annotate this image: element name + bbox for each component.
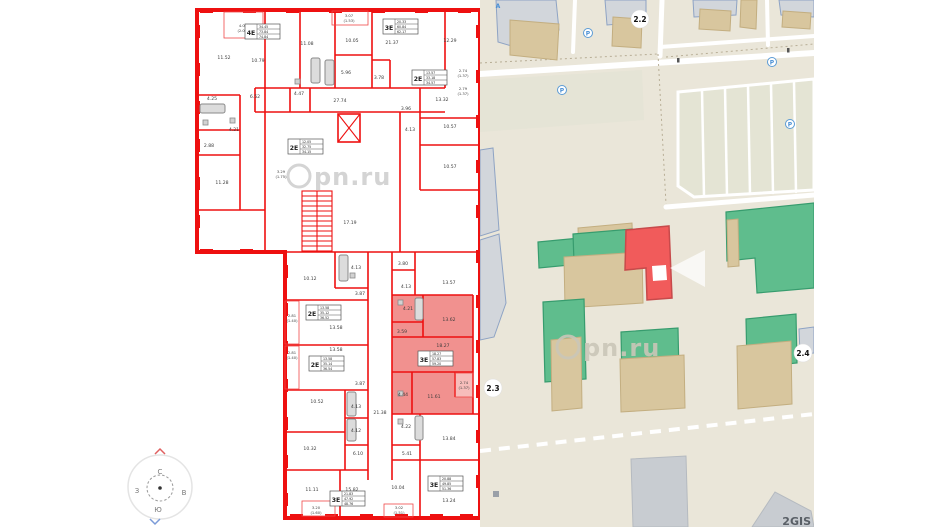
svg-text:2Е: 2Е — [290, 145, 299, 152]
svg-text:2.3: 2.3 — [486, 384, 499, 393]
room-label: 13.84 — [442, 436, 455, 442]
screenshot-root: 4.02 (2.01) 11.52 4.25 2.88 11.28 10.79 … — [0, 0, 936, 527]
room-label: 3.02 — [395, 506, 403, 510]
compass-south-arrow-icon — [150, 519, 160, 524]
room-label: (1.37) — [457, 92, 469, 96]
apt-table-2e-d: 2Е13.5835.1436.54 — [309, 356, 344, 371]
svg-text:20.88: 20.88 — [442, 477, 451, 481]
building-badge-2-4[interactable]: 2.4 — [794, 344, 812, 362]
apt-table-3e-c: 3Е21.8347.9248.76 — [330, 491, 365, 506]
parking-icon: P — [768, 58, 777, 67]
svg-text:62.17: 62.17 — [397, 30, 406, 34]
svg-text:21.83: 21.83 — [344, 492, 353, 496]
svg-text:2Е: 2Е — [414, 76, 423, 83]
room-label: 13.24 — [442, 498, 455, 504]
svg-text:36.54: 36.54 — [323, 367, 332, 371]
svg-text:P: P — [770, 60, 775, 67]
room-label: 2.88 — [204, 143, 214, 149]
apt-table-3e-top: 3Е20.3360.8462.17 — [383, 19, 418, 34]
room-label: 5.41 — [402, 451, 412, 457]
parking-icon: P — [584, 29, 593, 38]
room-label: 3.78 — [374, 75, 384, 81]
svg-text:34.15: 34.15 — [302, 150, 311, 154]
room-label: 27.74 — [333, 98, 346, 104]
apt-table-3e-d: 3Е20.8849.8551.36 — [428, 476, 463, 491]
room-label: (1.40) — [286, 356, 298, 360]
svg-text:3Е: 3Е — [385, 25, 394, 32]
compass-east: В — [182, 489, 187, 497]
room-label: 10.05 — [345, 38, 358, 44]
room-label: 13.58 — [329, 347, 342, 353]
room-label: 2.79 — [459, 87, 468, 91]
apt-table-4e: 4Е34.4573.8474.84 — [245, 24, 280, 39]
room-label: (1.75) — [275, 175, 287, 179]
room-label: 3.20 — [312, 506, 321, 510]
room-label: 6.10 — [353, 451, 363, 457]
apt-table-3e-highlighted: 3Е18.2757.8359.20 — [418, 351, 453, 366]
svg-text:P: P — [560, 88, 565, 95]
room-label: 2.74 — [459, 69, 468, 73]
room-label: 4.21 — [403, 306, 413, 312]
svg-text:18.27: 18.27 — [432, 352, 441, 356]
room-label: 21.37 — [385, 40, 398, 46]
room-label: 6.52 — [250, 94, 260, 100]
svg-text:74.84: 74.84 — [259, 35, 268, 39]
room-label: 4.22 — [401, 424, 411, 430]
svg-text:P: P — [788, 122, 793, 129]
room-label: 13.57 — [442, 280, 455, 286]
small-structure — [493, 491, 499, 497]
room-label: 12.29 — [443, 38, 456, 44]
highlighted-unit-marker — [652, 265, 667, 281]
svg-text:4Е: 4Е — [247, 30, 256, 37]
highlighted-apartment-balcony — [455, 373, 473, 397]
room-label: 11.11 — [305, 487, 318, 493]
svg-text:36.52: 36.52 — [320, 316, 329, 320]
svg-text:73.84: 73.84 — [259, 30, 268, 34]
svg-text:34.45: 34.45 — [259, 25, 268, 29]
room-label: 4.13 — [351, 265, 361, 271]
svg-text:47.92: 47.92 — [344, 497, 353, 501]
building-badge-2-2[interactable]: 2.2 — [631, 10, 649, 28]
svg-text:35.12: 35.12 — [320, 311, 329, 315]
room-label: 4.25 — [207, 96, 217, 102]
svg-text:2Е: 2Е — [311, 362, 320, 369]
svg-text:34.57: 34.57 — [426, 81, 435, 85]
room-label: 4.21 — [229, 127, 239, 133]
svg-text:13.58: 13.58 — [320, 306, 329, 310]
room-label: 11.28 — [215, 180, 228, 186]
room-label: 2.81 — [288, 314, 296, 318]
apt-table-2e-b: 2Е13.5733.1834.57 — [412, 70, 447, 85]
map[interactable]: P P P P А 2.2 2.3 2.4 pn.ru 2GIS — [480, 0, 814, 527]
svg-text:60.84: 60.84 — [397, 25, 406, 29]
parking-icon: P — [558, 86, 567, 95]
room-label: 10.52 — [310, 399, 323, 405]
room-label: 11.08 — [300, 41, 313, 47]
room-label: 17.19 — [343, 220, 356, 226]
room-label: 10.57 — [443, 124, 456, 130]
compass-west: З — [135, 487, 140, 495]
watermark-text: pn.ru — [583, 334, 660, 362]
svg-text:59.20: 59.20 — [432, 362, 441, 366]
parking-icon: P — [786, 120, 795, 129]
compass-north-arrow-icon — [155, 449, 165, 454]
room-label: 3.59 — [397, 329, 407, 335]
room-label: 21.38 — [373, 410, 386, 416]
svg-text:57.83: 57.83 — [432, 357, 441, 361]
svg-text:48.76: 48.76 — [344, 502, 353, 506]
compass-south: Ю — [154, 506, 162, 514]
room-label: 3.96 — [401, 106, 411, 112]
room-label: 4.13 — [405, 127, 415, 133]
room-label: 11.52 — [217, 55, 230, 61]
svg-text:32.75: 32.75 — [302, 145, 311, 149]
apt-table-2e-a: 2Е12.0532.7534.15 — [288, 139, 323, 154]
svg-text:2.2: 2.2 — [633, 15, 646, 24]
svg-text:49.85: 49.85 — [442, 482, 451, 486]
building-badge-2-3[interactable]: 2.3 — [484, 379, 502, 397]
compass: С Ю З В — [128, 449, 192, 524]
room-label: 4.12 — [351, 428, 361, 434]
svg-text:20.33: 20.33 — [397, 20, 406, 24]
room-label: 2.74 — [460, 381, 469, 385]
room-label: 10.32 — [303, 446, 316, 452]
map-provider-logo: 2GIS — [782, 515, 811, 527]
meter-icon — [677, 58, 680, 63]
room-label: 3.29 — [277, 170, 286, 174]
svg-text:3Е: 3Е — [420, 357, 429, 364]
room-label: 11.61 — [427, 394, 440, 400]
room-label: 4.13 — [401, 284, 411, 290]
room-label: 4.47 — [294, 91, 304, 97]
svg-text:33.18: 33.18 — [426, 76, 435, 80]
room-label: 2.81 — [288, 351, 296, 355]
svg-text:3Е: 3Е — [430, 482, 439, 489]
room-label: 3.87 — [355, 291, 365, 297]
room-label: 13.32 — [435, 97, 448, 103]
svg-text:2Е: 2Е — [308, 311, 317, 318]
room-label: 10.04 — [391, 485, 404, 491]
room-label: (1.40) — [286, 319, 298, 323]
meter-icon — [787, 48, 790, 53]
svg-text:3Е: 3Е — [332, 497, 341, 504]
room-label: 4.44 — [398, 392, 408, 398]
room-label: (1.37) — [457, 74, 469, 78]
room-label: (1.53) — [343, 19, 355, 23]
svg-text:12.05: 12.05 — [302, 140, 311, 144]
room-label: 3.07 — [345, 14, 354, 18]
svg-text:51.36: 51.36 — [442, 487, 451, 491]
room-label: 3.80 — [398, 261, 408, 267]
room-label: 13.62 — [442, 317, 455, 323]
svg-text:13.58: 13.58 — [323, 357, 332, 361]
room-label: (1.60) — [310, 511, 322, 515]
svg-text:2.4: 2.4 — [796, 349, 809, 358]
room-label: 4.13 — [351, 404, 361, 410]
room-label: 10.57 — [443, 164, 456, 170]
room-label: 13.58 — [329, 325, 342, 331]
svg-text:P: P — [586, 31, 591, 38]
room-label: (1.51) — [393, 511, 405, 515]
room-label: 10.12 — [303, 276, 316, 282]
room-label: 3.87 — [355, 381, 365, 387]
room-label: 18.27 — [436, 343, 449, 349]
room-label: 10.79 — [251, 58, 264, 64]
svg-text:35.14: 35.14 — [323, 362, 332, 366]
floorplan: 4.02 (2.01) 11.52 4.25 2.88 11.28 10.79 … — [0, 0, 480, 527]
room-label: (1.37) — [458, 386, 470, 390]
transit-stop-icon: А — [496, 3, 501, 10]
compass-north: С — [158, 468, 163, 476]
apt-table-2e-c: 2Е13.5835.1236.52 — [306, 305, 341, 320]
room-label: 5.96 — [341, 70, 351, 76]
svg-text:13.57: 13.57 — [426, 71, 435, 75]
watermark-text: pn.ru — [314, 163, 391, 191]
